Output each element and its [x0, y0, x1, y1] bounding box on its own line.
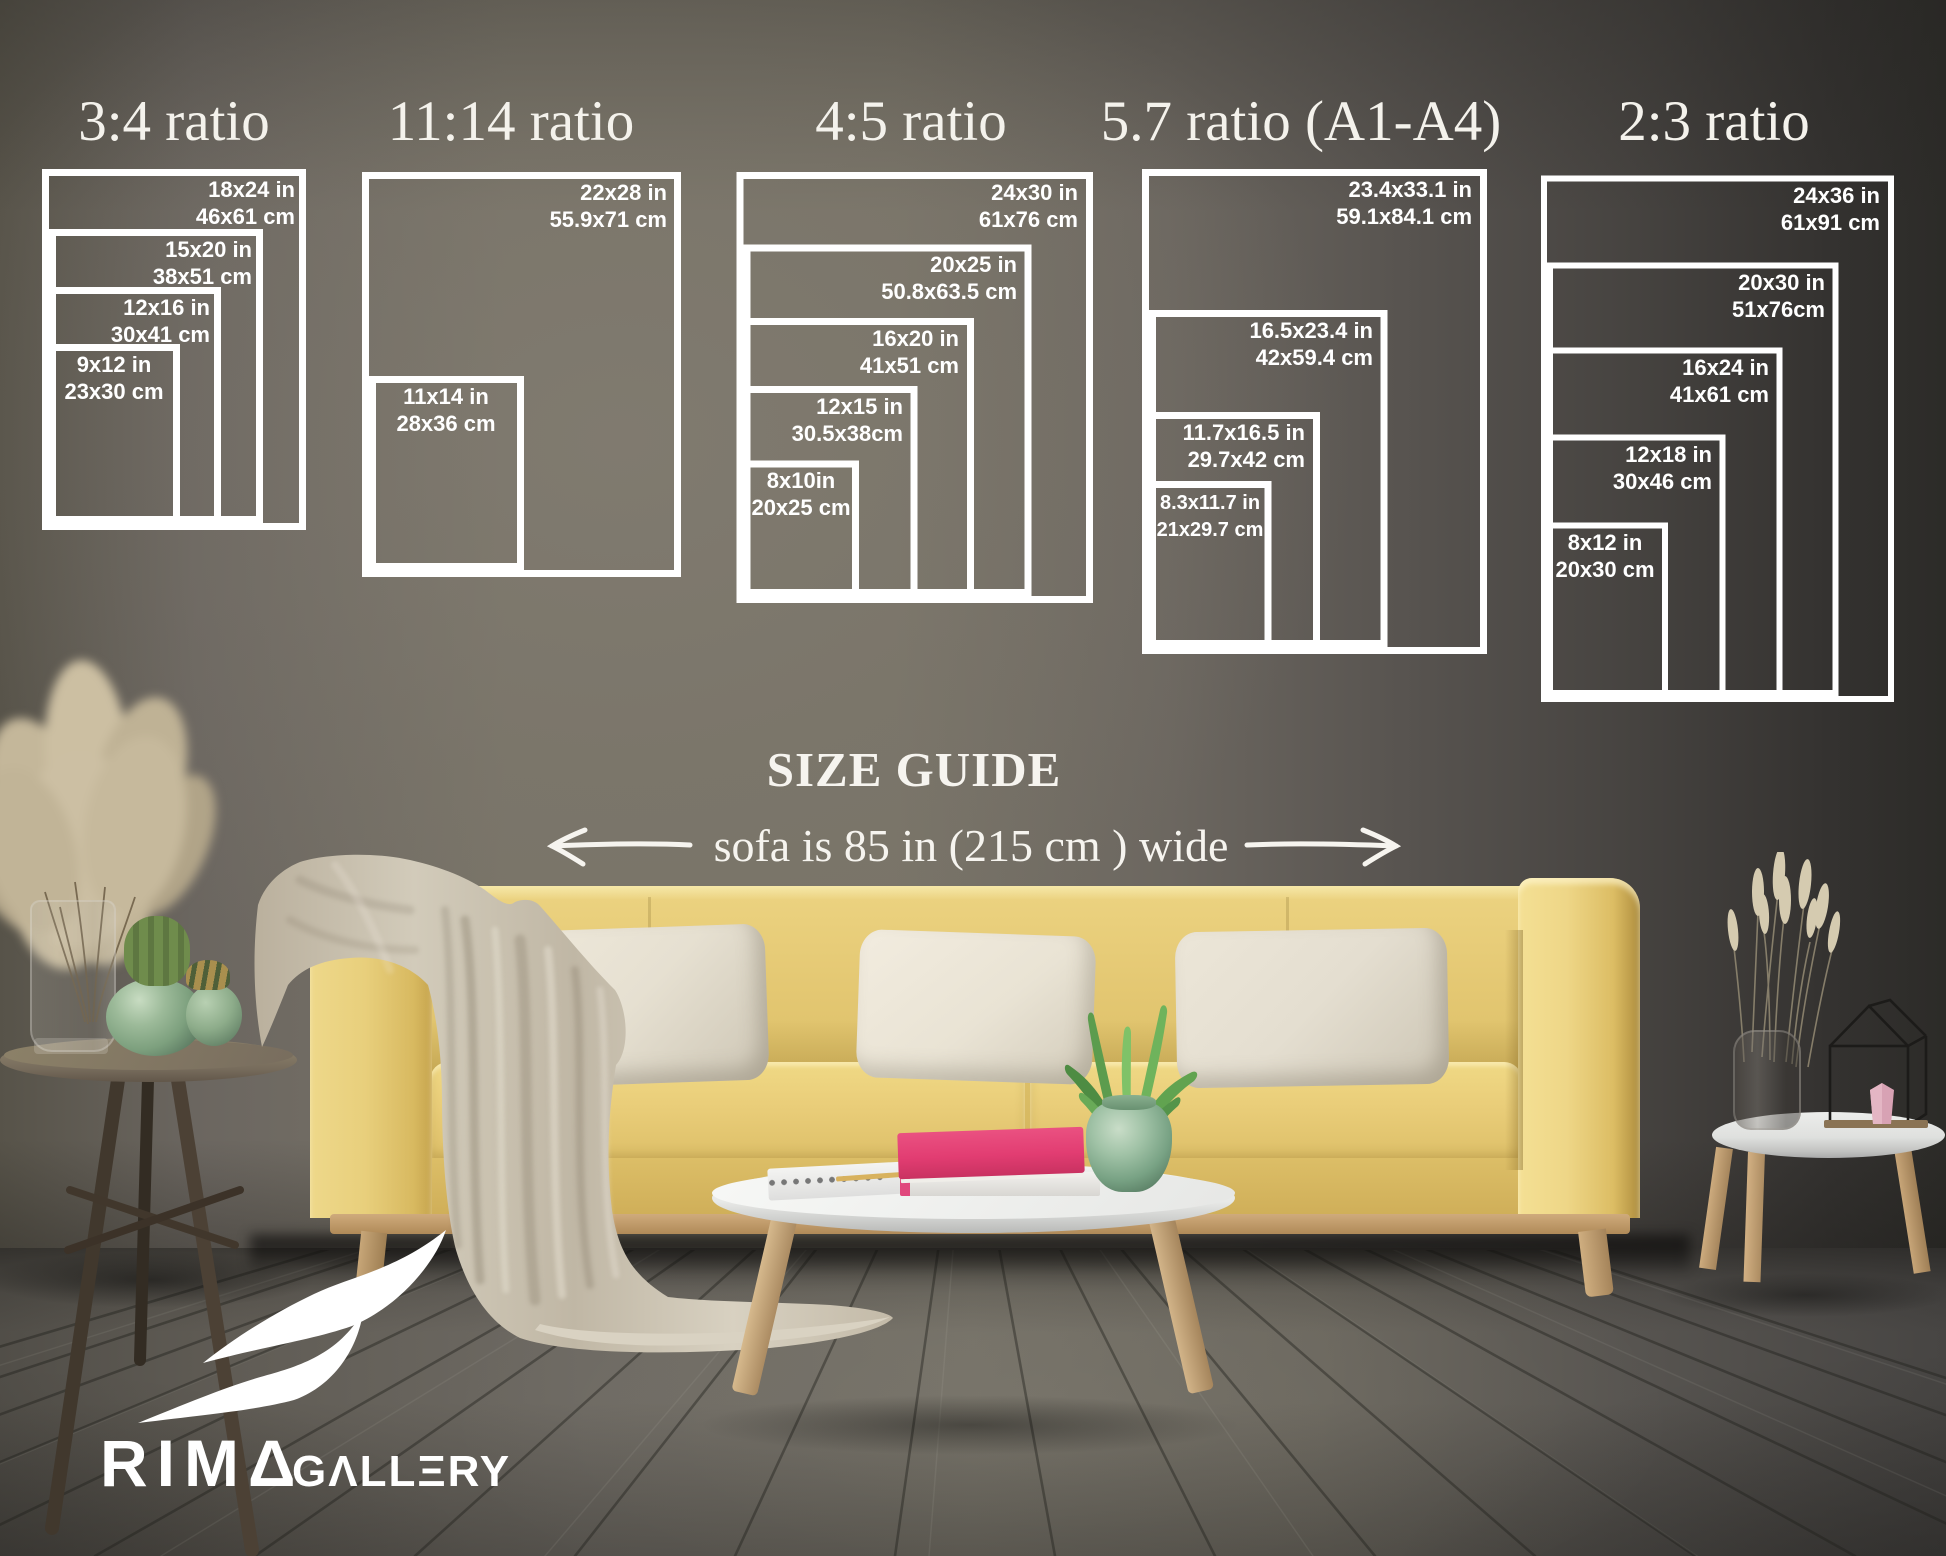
svg-text:9x12 in: 9x12 in [77, 352, 152, 377]
svg-text:51x76cm: 51x76cm [1732, 297, 1825, 322]
svg-text:20x30 in: 20x30 in [1738, 270, 1825, 295]
svg-text:20x25 in: 20x25 in [930, 252, 1017, 277]
svg-text:20x25 cm: 20x25 cm [751, 495, 850, 520]
svg-text:RIMΔ: RIMΔ [100, 1426, 304, 1500]
svg-text:30x46 cm: 30x46 cm [1613, 469, 1712, 494]
svg-text:15x20 in: 15x20 in [165, 237, 252, 262]
svg-text:16x20 in: 16x20 in [872, 326, 959, 351]
svg-text:24x36 in: 24x36 in [1793, 183, 1880, 208]
svg-text:59.1x84.1 cm: 59.1x84.1 cm [1336, 204, 1472, 229]
svg-text:11:14 ratio: 11:14 ratio [388, 90, 634, 153]
svg-text:11.7x16.5 in: 11.7x16.5 in [1183, 420, 1305, 445]
svg-text:38x51 cm: 38x51 cm [153, 264, 252, 289]
svg-text:41x61 cm: 41x61 cm [1670, 382, 1769, 407]
svg-text:28x36 cm: 28x36 cm [396, 411, 495, 436]
svg-text:8.3x11.7 in: 8.3x11.7 in [1160, 492, 1260, 514]
svg-text:8x10in: 8x10in [767, 468, 836, 493]
svg-text:11x14 in: 11x14 in [403, 384, 489, 409]
svg-text:5.7 ratio (A1-A4): 5.7 ratio (A1-A4) [1101, 90, 1501, 153]
svg-text:22x28 in: 22x28 in [580, 180, 667, 205]
svg-text:42x59.4 cm: 42x59.4 cm [1256, 345, 1373, 370]
svg-text:24x30 in: 24x30 in [991, 180, 1078, 205]
svg-text:61x91 cm: 61x91 cm [1781, 210, 1880, 235]
svg-text:23x30 cm: 23x30 cm [64, 379, 163, 404]
svg-text:29.7x42 cm: 29.7x42 cm [1188, 447, 1305, 472]
svg-text:3:4 ratio: 3:4 ratio [78, 90, 270, 153]
svg-text:55.9x71 cm: 55.9x71 cm [550, 207, 667, 232]
svg-text:12x18 in: 12x18 in [1625, 442, 1712, 467]
svg-text:21x29.7 cm: 21x29.7 cm [1157, 519, 1264, 541]
svg-text:30x41 cm: 30x41 cm [111, 322, 210, 347]
svg-text:46x61 cm: 46x61 cm [196, 204, 295, 229]
svg-text:8x12 in: 8x12 in [1568, 530, 1643, 555]
svg-text:18x24 in: 18x24 in [208, 177, 295, 202]
svg-text:61x76 cm: 61x76 cm [979, 207, 1078, 232]
svg-text:30.5x38cm: 30.5x38cm [792, 421, 903, 446]
svg-text:20x30 cm: 20x30 cm [1555, 557, 1654, 582]
svg-text:12x16 in: 12x16 in [123, 295, 210, 320]
svg-text:23.4x33.1 in: 23.4x33.1 in [1348, 177, 1472, 202]
svg-text:16x24 in: 16x24 in [1682, 355, 1769, 380]
svg-text:50.8x63.5 cm: 50.8x63.5 cm [881, 279, 1017, 304]
svg-text:GΛLLΞRY: GΛLLΞRY [292, 1447, 511, 1496]
svg-text:12x15 in: 12x15 in [816, 394, 903, 419]
svg-text:4:5 ratio: 4:5 ratio [815, 90, 1007, 153]
svg-text:SIZE GUIDE: SIZE GUIDE [767, 742, 1062, 797]
svg-text:sofa is 85 in (215 cm ) wide: sofa is 85 in (215 cm ) wide [714, 820, 1229, 871]
svg-text:2:3 ratio: 2:3 ratio [1618, 90, 1810, 153]
svg-text:16.5x23.4 in: 16.5x23.4 in [1249, 318, 1373, 343]
svg-text:41x51 cm: 41x51 cm [860, 353, 959, 378]
